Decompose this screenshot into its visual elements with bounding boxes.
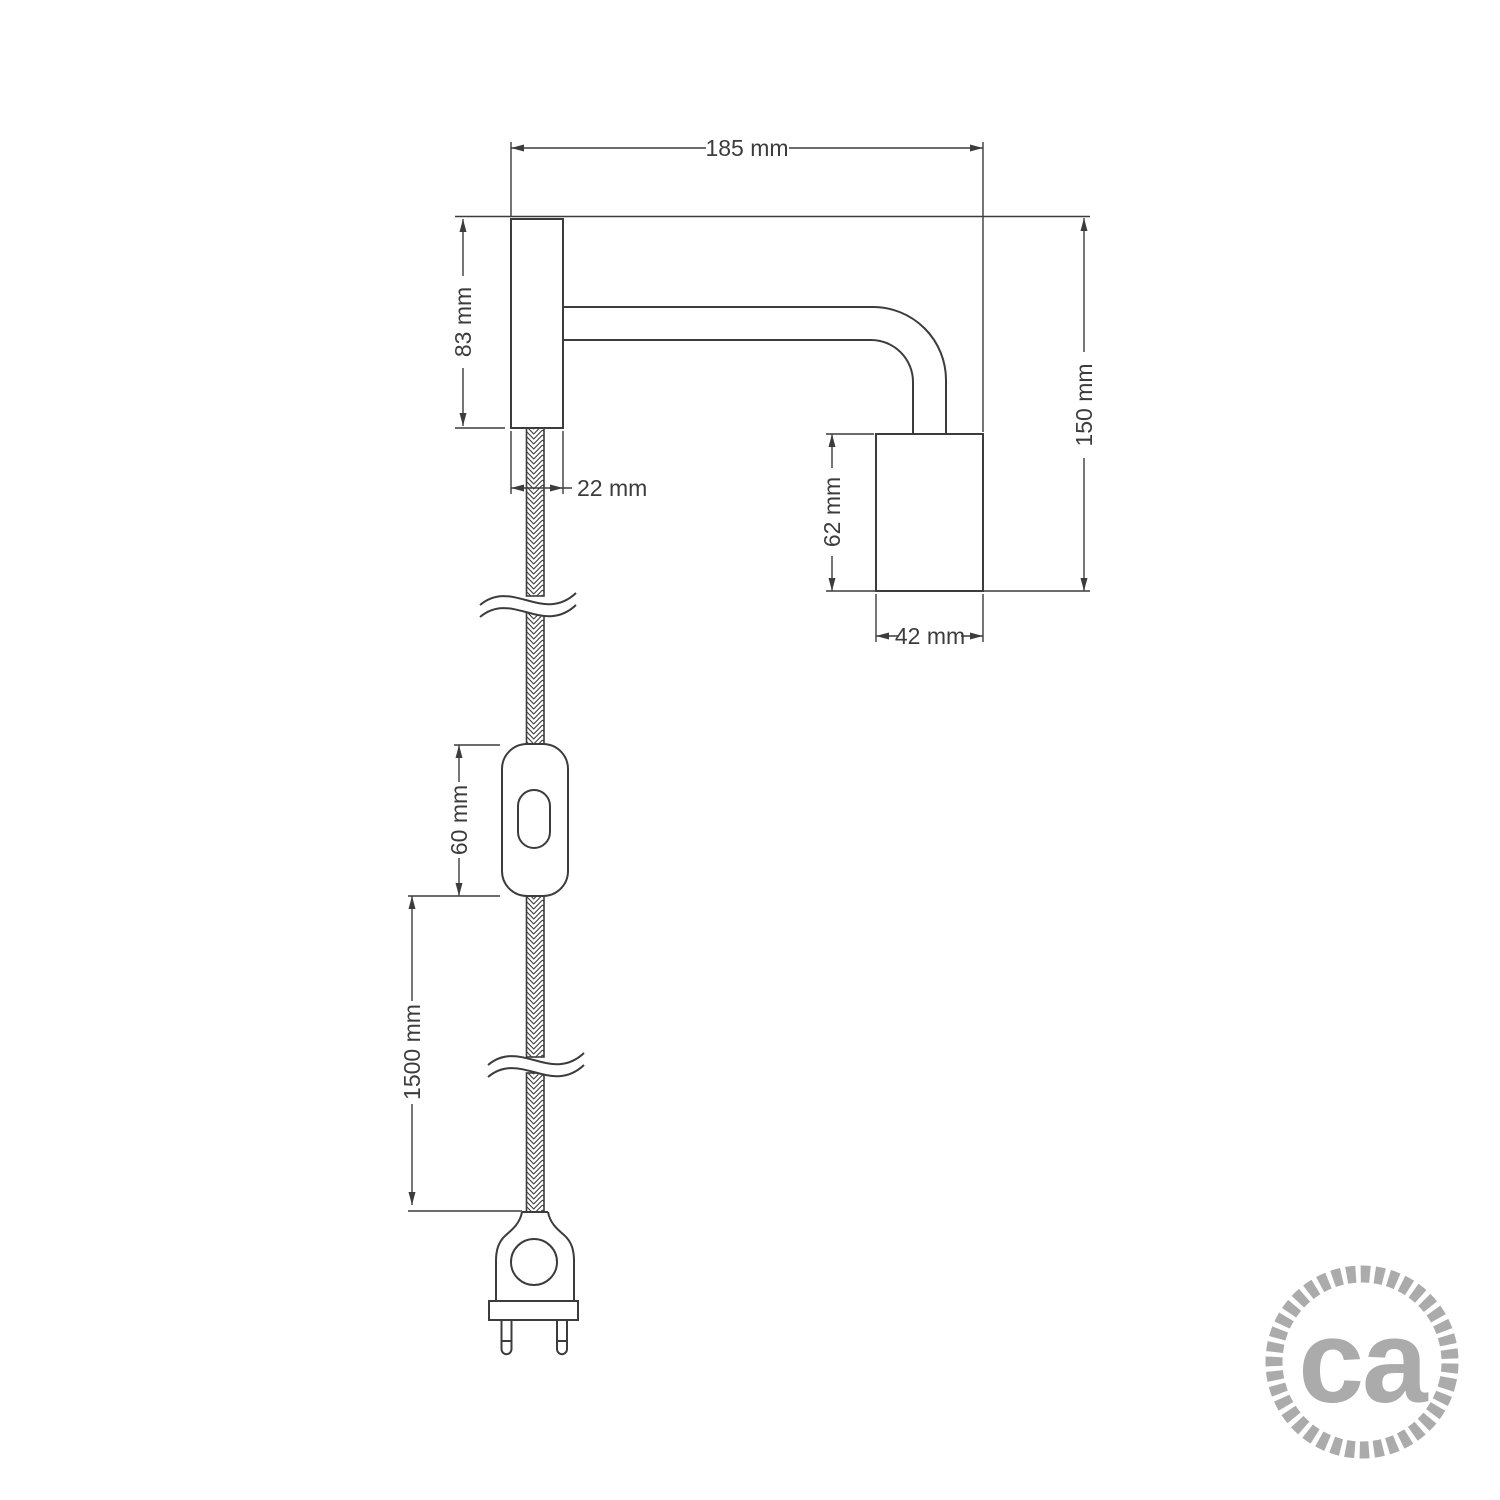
label-total-width: 185 mm <box>705 135 788 161</box>
lamp-holder-body <box>876 434 983 591</box>
arrow <box>970 145 983 152</box>
wall-mount-body <box>511 219 563 428</box>
arrow <box>550 485 563 492</box>
switch-rocker <box>518 790 550 848</box>
cable-segment-1 <box>527 428 545 596</box>
arrow <box>511 485 524 492</box>
arm-inner-contour <box>563 340 913 434</box>
label-total-height: 150 mm <box>1071 363 1097 446</box>
arrow <box>1081 218 1088 231</box>
arrow <box>460 413 467 426</box>
technical-drawing: 185 mm 83 mm 22 mm 150 mm 62 mm 42 mm 60… <box>0 0 1500 1500</box>
plug-flange <box>489 1301 578 1320</box>
cable-segment-2 <box>527 612 545 744</box>
plug-body-left <box>496 1212 522 1301</box>
plug-pin-right <box>557 1320 567 1354</box>
arrow <box>876 633 889 640</box>
label-base-height: 83 mm <box>450 287 476 357</box>
arrow <box>456 745 463 758</box>
brand-logo: ca <box>1258 1258 1467 1467</box>
drawing-canvas: 185 mm 83 mm 22 mm 150 mm 62 mm 42 mm 60… <box>0 0 1500 1500</box>
plug-body-right <box>548 1212 574 1301</box>
arm-outer-contour <box>563 307 946 434</box>
arrow <box>511 145 524 152</box>
lamp-outline <box>511 219 983 591</box>
inline-switch <box>502 744 568 896</box>
arrow <box>409 1192 416 1205</box>
label-base-width: 22 mm <box>577 475 647 501</box>
dimension-labels: 185 mm 83 mm 22 mm 150 mm 62 mm 42 mm 60… <box>399 135 1097 1100</box>
arrow <box>829 434 836 447</box>
cable-segment-3 <box>527 896 545 1057</box>
cable-segment-4 <box>527 1073 545 1212</box>
arrow <box>829 578 836 591</box>
arrow <box>409 896 416 909</box>
label-switch-length: 60 mm <box>446 785 472 855</box>
label-cable-length: 1500 mm <box>399 1004 425 1100</box>
arrow <box>1081 578 1088 591</box>
two-pin-plug <box>489 1212 578 1354</box>
label-holder-width: 42 mm <box>895 623 965 649</box>
plug-pin-left <box>502 1320 512 1354</box>
plug-screw-circle <box>511 1239 557 1285</box>
logo-text: ca <box>1298 1296 1429 1428</box>
arrow <box>456 883 463 896</box>
label-holder-height: 62 mm <box>819 477 845 547</box>
arrow <box>460 219 467 232</box>
arrow <box>970 633 983 640</box>
